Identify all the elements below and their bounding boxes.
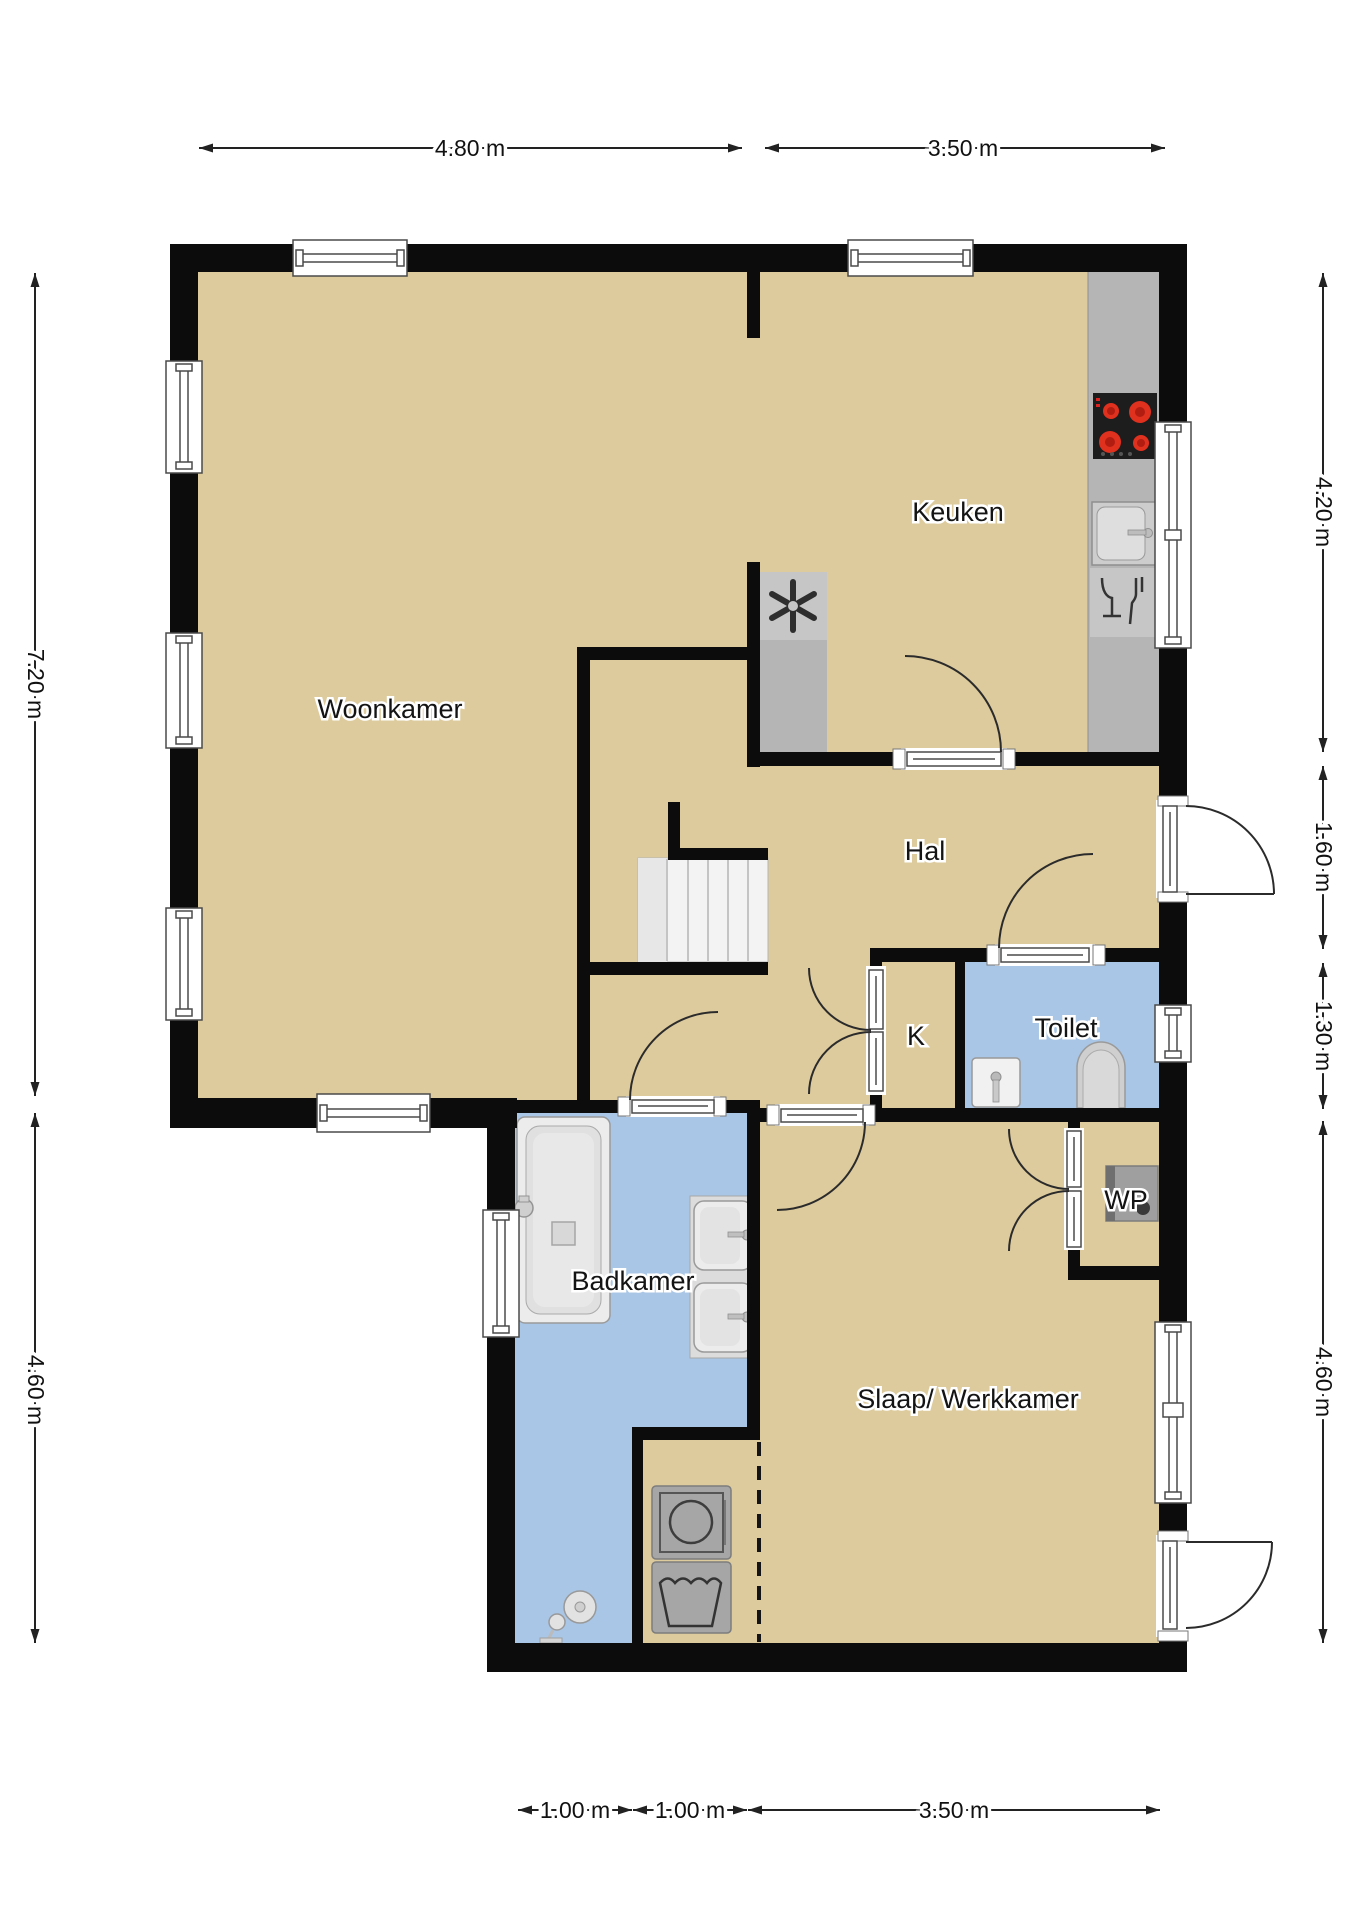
dimension-label: 4.80 m <box>435 135 505 161</box>
dimension-label: 4.20 m <box>1311 477 1337 547</box>
ventilation-unit <box>760 572 827 753</box>
window <box>293 240 407 276</box>
window <box>166 908 202 1020</box>
window <box>1155 1005 1191 1062</box>
stairs <box>638 858 768 962</box>
dimension-label: 4.60 m <box>23 1355 49 1425</box>
dimension-left-1: 7.20 m <box>23 273 49 1096</box>
dimension-top-2: 3.50 m <box>765 135 1165 161</box>
room-label-slaap-werkkamer: Slaap/ Werkkamer <box>857 1384 1079 1414</box>
room-label-k: K <box>907 1021 925 1051</box>
laundry-symbol-icon <box>652 1562 731 1633</box>
dimension-bottom-1: 1.00 m <box>518 1797 632 1823</box>
room-label-toilet: Toilet <box>1034 1013 1098 1043</box>
dishwasher-icon <box>1090 568 1157 637</box>
washing-machine-icon <box>652 1486 731 1559</box>
dimension-left-2: 4.60 m <box>23 1113 49 1643</box>
dimension-label: 3.50 m <box>919 1797 989 1823</box>
dimension-label: 3.50 m <box>928 135 998 161</box>
window <box>1155 422 1191 648</box>
floor-plan-page: Woonkamer Keuken Hal K Toilet Badkamer S… <box>0 0 1358 1920</box>
dimension-right-2: 1.60 m <box>1311 766 1337 949</box>
window <box>166 361 202 473</box>
window <box>848 240 973 276</box>
room-label-wp: WP <box>1104 1185 1148 1215</box>
dimension-right-4: 4.60 m <box>1311 1121 1337 1643</box>
dimension-label: 7.20 m <box>23 649 49 719</box>
dimension-label: 4.60 m <box>1311 1347 1337 1417</box>
kitchen-counter <box>1088 272 1159 752</box>
window <box>483 1210 519 1337</box>
window <box>317 1094 430 1132</box>
toilet-bowl-icon <box>1077 1042 1125 1108</box>
dimension-label: 1.00 m <box>540 1797 610 1823</box>
dimension-label: 1.00 m <box>655 1797 725 1823</box>
dimension-label: 1.60 m <box>1311 822 1337 892</box>
window <box>1155 1322 1191 1503</box>
dimension-right-1: 4.20 m <box>1311 273 1337 752</box>
stove-icon <box>1093 393 1157 459</box>
dimension-bottom-3: 3.50 m <box>748 1797 1160 1823</box>
kitchen-sink-icon <box>1092 502 1157 565</box>
window <box>166 633 202 748</box>
dimension-bottom-2: 1.00 m <box>633 1797 747 1823</box>
floor-plan-canvas: Woonkamer Keuken Hal K Toilet Badkamer S… <box>0 0 1358 1920</box>
dimension-top-1: 4.80 m <box>199 135 742 161</box>
room-label-hal: Hal <box>905 836 946 866</box>
room-label-badkamer: Badkamer <box>571 1266 694 1296</box>
dimension-right-3: 1.30 m <box>1311 963 1337 1109</box>
room-label-keuken: Keuken <box>912 497 1004 527</box>
door-front-entrance <box>1156 796 1274 902</box>
door-bedroom-exterior <box>1156 1531 1272 1641</box>
toilet-sink-icon <box>972 1058 1020 1107</box>
dimension-label: 1.30 m <box>1311 1001 1337 1071</box>
room-label-woonkamer: Woonkamer <box>317 694 462 724</box>
